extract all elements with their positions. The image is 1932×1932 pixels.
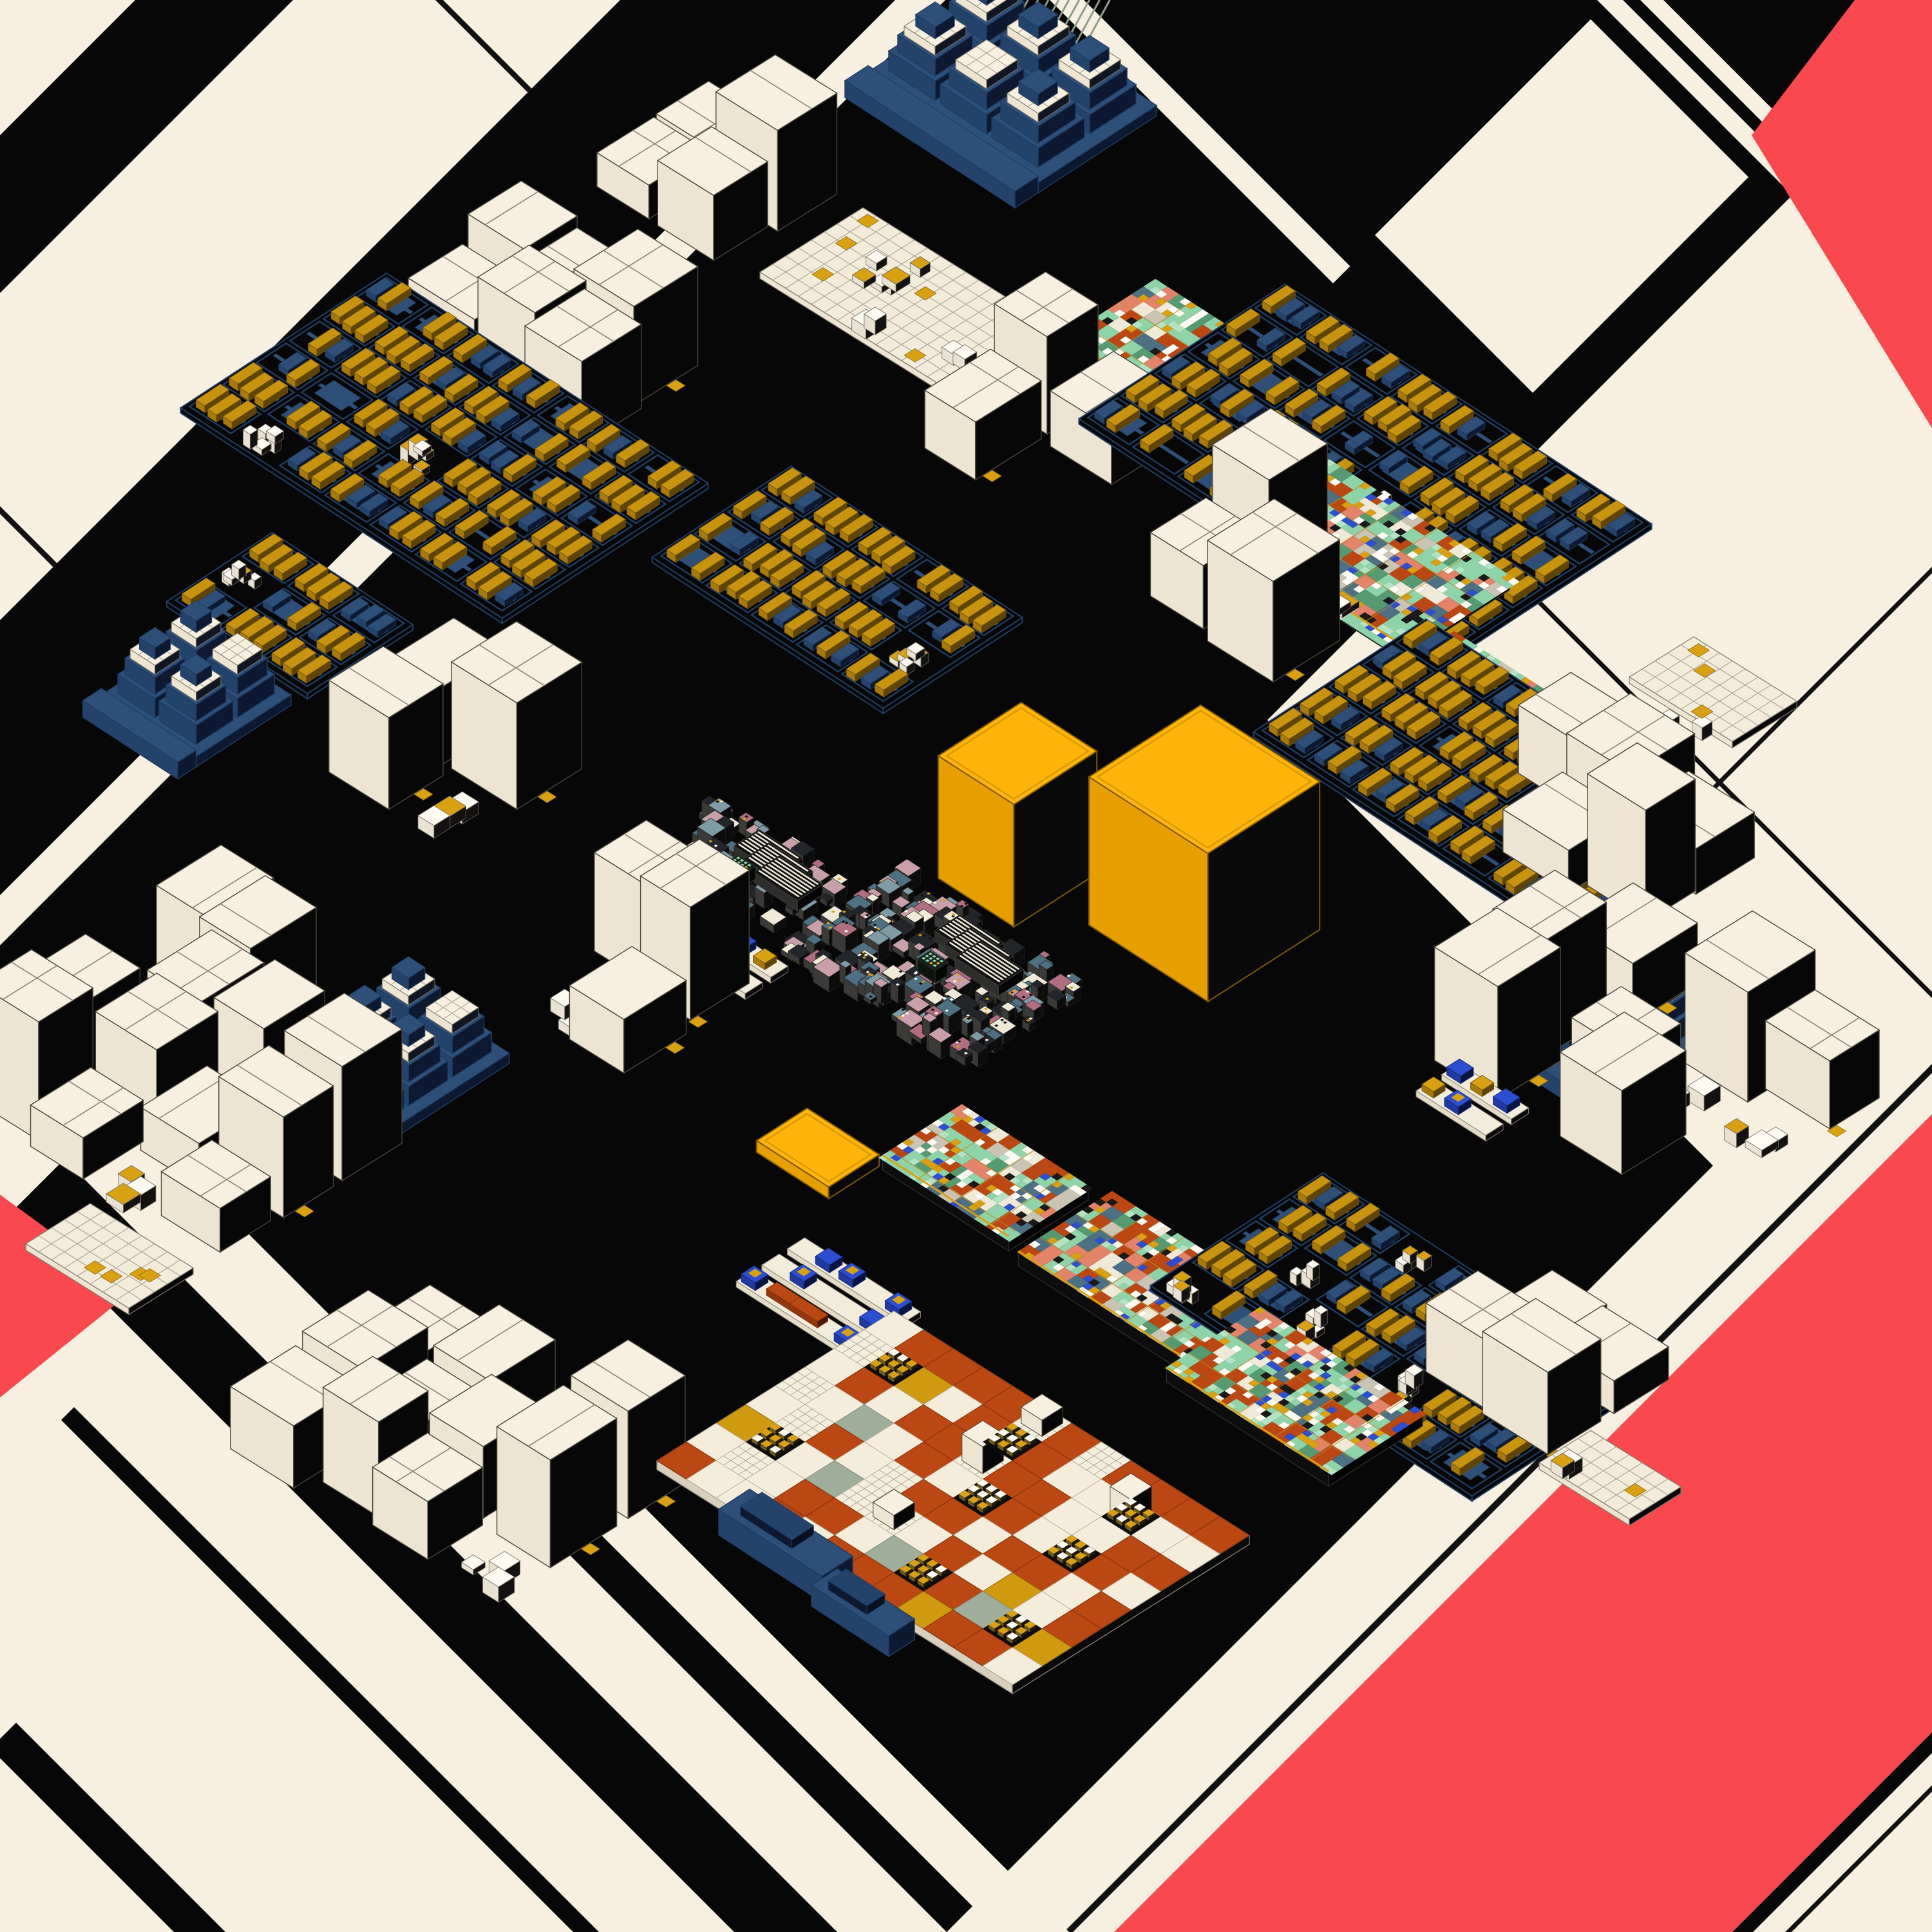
artwork-stage (0, 0, 1932, 1932)
generative-isometric-circuit-city (0, 0, 1932, 1932)
